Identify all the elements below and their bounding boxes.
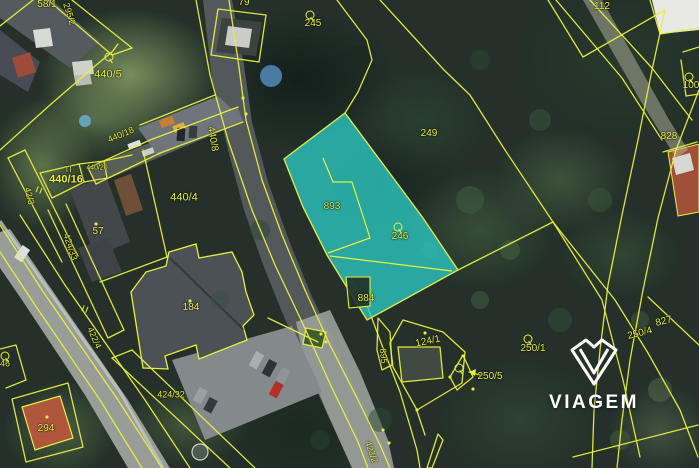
highlighted-parcel: [284, 113, 458, 320]
cadastral-map-screenshot: 58/1295/2440/579245112100828249440/18440…: [0, 0, 699, 468]
map-overlay-svg: [0, 0, 699, 468]
highlighted-parcel-shape: [284, 113, 458, 320]
